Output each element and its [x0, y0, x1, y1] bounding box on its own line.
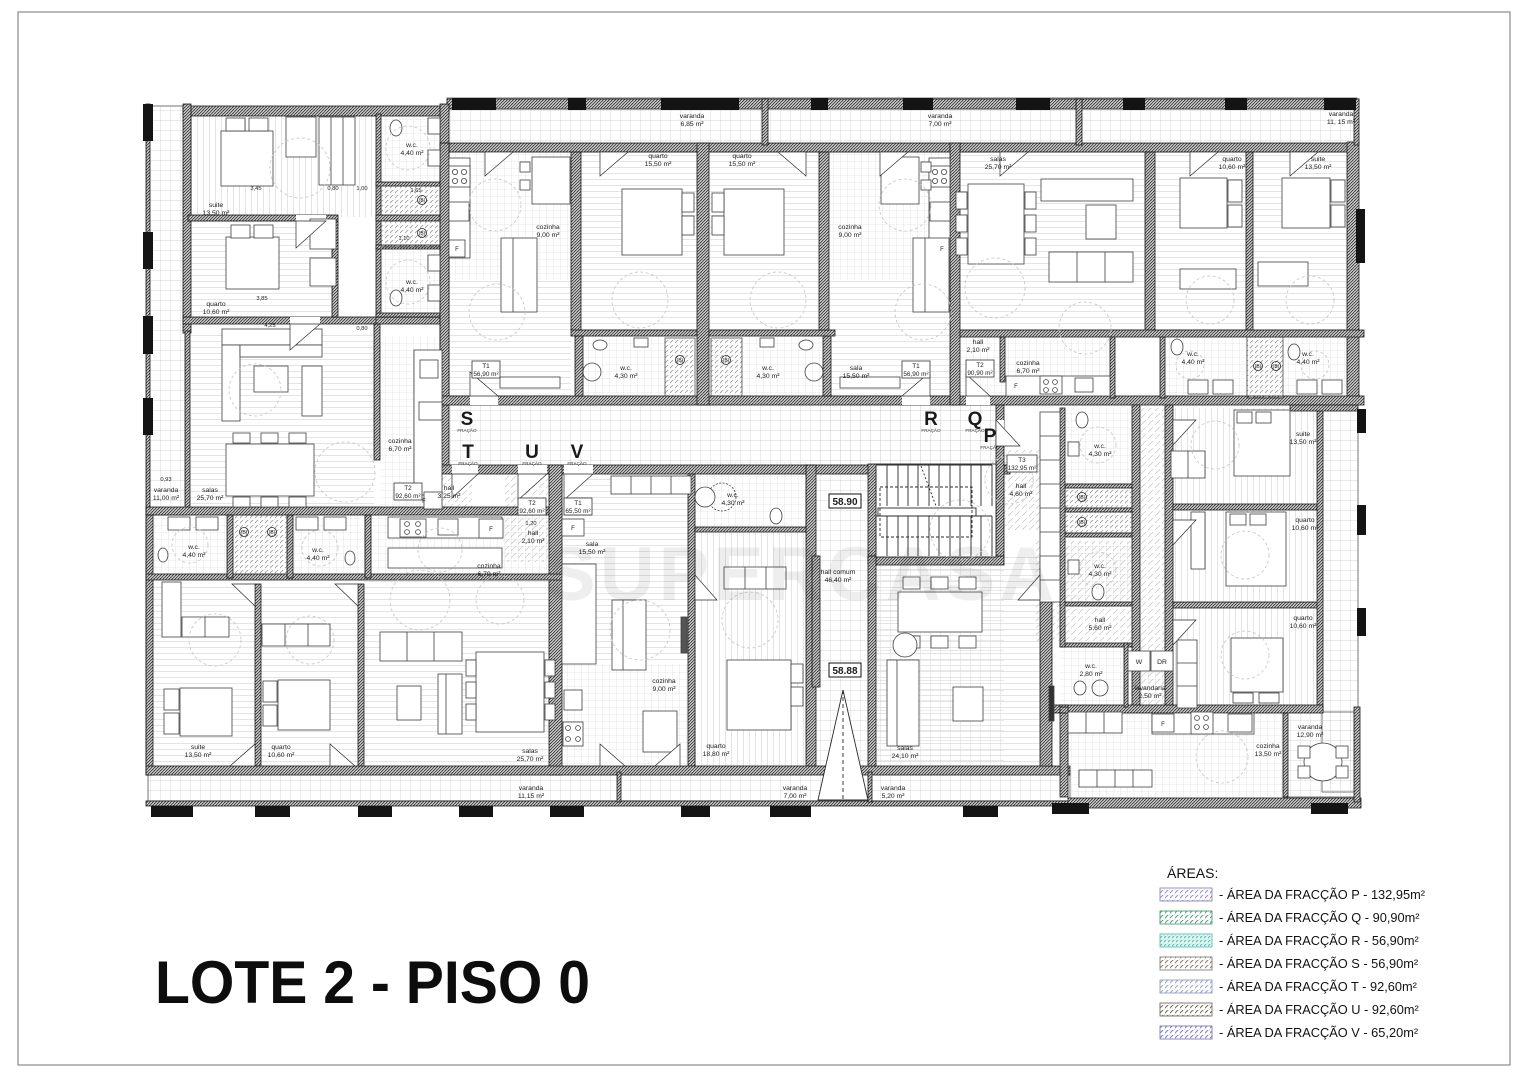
- svg-text:FRAÇÃO: FRAÇÃO: [921, 427, 941, 433]
- svg-text:(B): (B): [269, 530, 276, 536]
- svg-text:92,60 m²: 92,60 m²: [519, 508, 544, 515]
- svg-text:cozinha: cozinha: [477, 563, 501, 570]
- svg-text:- ÁREA DA FRACÇÃO T - 92,60m²: - ÁREA DA FRACÇÃO T - 92,60m²: [1219, 979, 1418, 994]
- svg-text:0,80: 0,80: [327, 186, 338, 192]
- svg-text:7,00 m²: 7,00 m²: [928, 121, 952, 128]
- svg-text:1,00: 1,00: [356, 186, 367, 192]
- svg-text:- ÁREA DA FRACÇÃO S - 56,90m²: - ÁREA DA FRACÇÃO S - 56,90m²: [1219, 956, 1419, 971]
- svg-text:quarto: quarto: [1222, 156, 1241, 163]
- svg-text:T3: T3: [1018, 457, 1026, 464]
- svg-text:sala: sala: [850, 365, 863, 372]
- svg-text:LOTE 2 - PISO 0: LOTE 2 - PISO 0: [155, 949, 590, 1016]
- svg-text:F: F: [1161, 722, 1165, 728]
- svg-text:3,45: 3,45: [250, 186, 261, 192]
- svg-text:2,10 m²: 2,10 m²: [521, 538, 545, 545]
- svg-text:13,50 m²: 13,50 m²: [203, 210, 231, 217]
- svg-text:hall: hall: [528, 530, 539, 537]
- svg-text:6,70 m²: 6,70 m²: [477, 571, 501, 578]
- svg-text:w.c.: w.c.: [187, 544, 200, 551]
- svg-text:cozinha: cozinha: [652, 678, 676, 685]
- svg-text:- ÁREA DA FRACÇÃO Q - 90,90m²: - ÁREA DA FRACÇÃO Q - 90,90m²: [1219, 910, 1420, 925]
- svg-text:11,00 m²: 11,00 m²: [153, 495, 180, 502]
- svg-text:4,30 m²: 4,30 m²: [721, 500, 745, 507]
- svg-text:13,50 m²: 13,50 m²: [1305, 164, 1333, 171]
- svg-text:quarto: quarto: [271, 744, 290, 751]
- svg-text:(B): (B): [677, 358, 684, 364]
- svg-text:FRAÇÃO: FRAÇÃO: [457, 427, 477, 433]
- svg-text:w.c.: w.c.: [311, 547, 324, 554]
- svg-text:suite: suite: [191, 744, 206, 751]
- svg-text:salas: salas: [897, 745, 913, 752]
- svg-text:varanda: varanda: [519, 785, 544, 792]
- svg-text:T2: T2: [528, 500, 536, 507]
- svg-text:92,60 m²: 92,60 m²: [395, 493, 420, 500]
- svg-text:P: P: [984, 426, 997, 447]
- svg-text:4,30 m²: 4,30 m²: [1088, 451, 1112, 458]
- svg-text:56,90 m²: 56,90 m²: [473, 371, 498, 378]
- svg-text:suite: suite: [209, 202, 224, 209]
- svg-text:F: F: [422, 499, 426, 505]
- svg-text:T1: T1: [482, 363, 490, 370]
- svg-text:9,00 m²: 9,00 m²: [838, 232, 862, 239]
- svg-text:T: T: [462, 442, 474, 463]
- svg-text:4,25: 4,25: [264, 323, 275, 329]
- svg-text:(B): (B): [241, 530, 248, 536]
- svg-text:w.c.: w.c.: [726, 492, 739, 499]
- svg-text:- ÁREA DA FRACÇÃO U - 92,60m²: - ÁREA DA FRACÇÃO U - 92,60m²: [1219, 1002, 1420, 1017]
- svg-text:salas: salas: [522, 748, 538, 755]
- svg-text:w.c.: w.c.: [1093, 443, 1106, 450]
- svg-text:13,50 m²: 13,50 m²: [185, 752, 213, 759]
- svg-text:varanda: varanda: [154, 487, 179, 494]
- svg-text:T1: T1: [912, 363, 920, 370]
- svg-text:w.c.: w.c.: [1093, 563, 1106, 570]
- svg-text:hall: hall: [1095, 617, 1106, 624]
- svg-text:cozinha: cozinha: [838, 224, 862, 231]
- svg-text:U: U: [525, 442, 539, 463]
- svg-text:cozinha: cozinha: [1016, 360, 1040, 367]
- svg-text:- ÁREA DA FRACÇÃO R - 56,90m²: - ÁREA DA FRACÇÃO R - 56,90m²: [1219, 933, 1420, 948]
- svg-text:varanda: varanda: [1298, 724, 1323, 731]
- svg-text:quarto: quarto: [706, 743, 725, 750]
- svg-text:(B): (B): [1255, 364, 1262, 370]
- svg-text:varanda: varanda: [1329, 111, 1354, 118]
- svg-text:quarto: quarto: [1295, 517, 1314, 524]
- svg-text:lavandaria: lavandaria: [1134, 685, 1166, 692]
- svg-text:2,80 m²: 2,80 m²: [1079, 671, 1103, 678]
- svg-text:w.c.: w.c.: [1186, 351, 1199, 358]
- svg-text:11,15 m²: 11,15 m²: [518, 793, 545, 800]
- svg-text:quarto: quarto: [648, 153, 667, 160]
- svg-text:11, 15 m²: 11, 15 m²: [1327, 119, 1356, 126]
- svg-text:15,50 m²: 15,50 m²: [645, 161, 673, 168]
- svg-text:58.88: 58.88: [832, 666, 857, 677]
- svg-text:4,40 m²: 4,40 m²: [182, 552, 206, 559]
- svg-text:6,85 m²: 6,85 m²: [680, 121, 704, 128]
- svg-text:(B): (B): [1079, 495, 1086, 501]
- svg-text:132,95 m²: 132,95 m²: [1008, 465, 1037, 472]
- svg-text:quarto: quarto: [1293, 615, 1312, 622]
- svg-text:W: W: [1136, 659, 1143, 666]
- svg-text:2,10 m²: 2,10 m²: [966, 347, 990, 354]
- svg-text:4,60 m²: 4,60 m²: [1009, 491, 1033, 498]
- svg-text:12,90 m²: 12,90 m²: [1297, 732, 1325, 739]
- svg-text:cozinha: cozinha: [388, 438, 412, 445]
- svg-text:varanda: varanda: [783, 785, 808, 792]
- svg-text:salas: salas: [202, 487, 218, 494]
- svg-text:- ÁREA DA FRACÇÃO P - 132,95m²: - ÁREA DA FRACÇÃO P - 132,95m²: [1219, 887, 1426, 902]
- svg-text:SUPERCASA: SUPERCASA: [545, 532, 1058, 617]
- svg-text:4,30 m²: 4,30 m²: [756, 373, 780, 380]
- svg-text:R: R: [924, 409, 938, 430]
- svg-text:salas: salas: [990, 156, 1006, 163]
- svg-text:15,50 m²: 15,50 m²: [729, 161, 757, 168]
- svg-text:3,25 m²: 3,25 m²: [437, 493, 461, 500]
- svg-text:4,40 m²: 4,40 m²: [1181, 359, 1205, 366]
- svg-text:varanda: varanda: [928, 113, 953, 120]
- svg-text:S: S: [461, 409, 474, 430]
- svg-text:13,50 m²: 13,50 m²: [1290, 439, 1318, 446]
- svg-text:w.c.: w.c.: [405, 279, 418, 286]
- svg-text:F: F: [455, 247, 459, 253]
- svg-text:6,70 m²: 6,70 m²: [1016, 368, 1040, 375]
- svg-text:58.90: 58.90: [832, 497, 857, 508]
- svg-text:4,40 m²: 4,40 m²: [400, 150, 424, 157]
- svg-text:6,70 m²: 6,70 m²: [388, 446, 412, 453]
- svg-text:(B): (B): [723, 358, 730, 364]
- svg-text:cozinha: cozinha: [1256, 743, 1280, 750]
- svg-text:hall: hall: [444, 485, 455, 492]
- svg-text:ÁREAS:: ÁREAS:: [1167, 865, 1218, 881]
- svg-text:- ÁREA DA FRACÇÃO V - 65,20m²: - ÁREA DA FRACÇÃO V - 65,20m²: [1219, 1025, 1419, 1040]
- svg-text:quarto: quarto: [732, 153, 751, 160]
- svg-text:F: F: [489, 527, 493, 533]
- svg-text:w.c.: w.c.: [405, 142, 418, 149]
- svg-text:T2: T2: [976, 362, 984, 369]
- svg-text:4,40 m²: 4,40 m²: [306, 555, 330, 562]
- svg-text:hall: hall: [1016, 483, 1027, 490]
- svg-text:10,60 m²: 10,60 m²: [1290, 623, 1318, 630]
- svg-text:65,50 m²: 65,50 m²: [565, 508, 590, 515]
- svg-text:T2: T2: [404, 485, 412, 492]
- svg-text:varanda: varanda: [680, 113, 705, 120]
- svg-text:15,50 m²: 15,50 m²: [843, 373, 871, 380]
- svg-text:hall: hall: [973, 339, 984, 346]
- svg-text:(B): (B): [419, 198, 426, 204]
- svg-text:2,50 m²: 2,50 m²: [1138, 693, 1162, 700]
- svg-text:FRAÇÃO: FRAÇÃO: [980, 444, 1000, 450]
- svg-text:5,20 m²: 5,20 m²: [881, 793, 905, 800]
- svg-text:90,90 m²: 90,90 m²: [967, 370, 992, 377]
- svg-text:V: V: [571, 442, 584, 463]
- svg-text:cozinha: cozinha: [536, 224, 560, 231]
- svg-text:FRAÇÃO: FRAÇÃO: [567, 460, 587, 466]
- svg-text:25,70 m²: 25,70 m²: [197, 495, 225, 502]
- svg-text:suite: suite: [1296, 431, 1311, 438]
- svg-text:FRAÇÃO: FRAÇÃO: [522, 460, 542, 466]
- svg-text:(B): (B): [419, 231, 426, 237]
- svg-text:18,80 m²: 18,80 m²: [703, 751, 731, 758]
- svg-text:10,60 m²: 10,60 m²: [1292, 525, 1320, 532]
- svg-text:10,60 m²: 10,60 m²: [268, 752, 296, 759]
- svg-text:4,40 m²: 4,40 m²: [400, 287, 424, 294]
- svg-text:1,65: 1,65: [410, 188, 421, 194]
- svg-text:varanda: varanda: [881, 785, 906, 792]
- svg-text:25,70 m²: 25,70 m²: [985, 164, 1013, 171]
- svg-text:Q: Q: [968, 409, 983, 430]
- svg-text:w.c.: w.c.: [619, 365, 632, 372]
- svg-text:10,60 m²: 10,60 m²: [1219, 164, 1247, 171]
- svg-text:suite: suite: [1311, 156, 1326, 163]
- svg-text:25,70 m²: 25,70 m²: [517, 756, 545, 763]
- svg-text:1,10: 1,10: [398, 236, 409, 242]
- svg-text:56,90 m²: 56,90 m²: [903, 371, 928, 378]
- svg-text:4,30 m²: 4,30 m²: [1088, 571, 1112, 578]
- svg-text:w.c.: w.c.: [1084, 663, 1097, 670]
- svg-text:F: F: [940, 247, 944, 253]
- svg-text:4,30 m²: 4,30 m²: [614, 373, 638, 380]
- svg-text:4,40 m²: 4,40 m²: [1296, 359, 1320, 366]
- svg-text:F: F: [1014, 384, 1018, 390]
- svg-text:24,10 m²: 24,10 m²: [892, 753, 920, 760]
- svg-text:(B): (B): [1273, 364, 1280, 370]
- svg-text:1,20: 1,20: [525, 521, 536, 527]
- svg-text:w.c.: w.c.: [761, 365, 774, 372]
- svg-text:9,00 m²: 9,00 m²: [536, 232, 560, 239]
- svg-text:5,60 m²: 5,60 m²: [1088, 625, 1112, 632]
- svg-text:0,93: 0,93: [160, 477, 171, 483]
- svg-text:FRAÇÃO: FRAÇÃO: [965, 427, 985, 433]
- svg-text:T1: T1: [574, 500, 582, 507]
- svg-text:w.c.: w.c.: [1301, 351, 1314, 358]
- svg-text:(B): (B): [1079, 520, 1086, 526]
- svg-text:3,85: 3,85: [256, 296, 267, 302]
- svg-text:13,50 m²: 13,50 m²: [1255, 751, 1283, 758]
- svg-text:9,00 m²: 9,00 m²: [652, 686, 676, 693]
- svg-text:FRAÇÃO: FRAÇÃO: [458, 460, 478, 466]
- svg-text:7,00 m²: 7,00 m²: [783, 793, 807, 800]
- svg-text:10,60 m²: 10,60 m²: [203, 309, 231, 316]
- svg-text:DR: DR: [1157, 659, 1167, 666]
- svg-text:0,80: 0,80: [356, 326, 367, 332]
- svg-text:quarto: quarto: [206, 301, 225, 308]
